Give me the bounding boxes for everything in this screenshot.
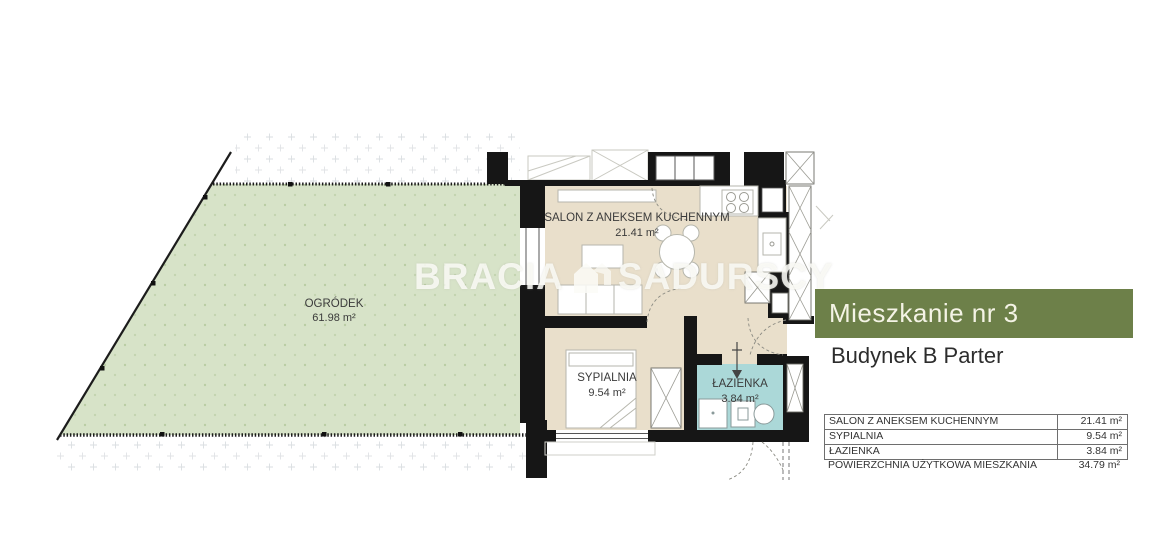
- apartment-title: Mieszkanie nr 3: [829, 298, 1019, 328]
- room-area-cell: 9.54 m²: [1057, 430, 1127, 444]
- room-name-cell: ŁAZIENKA: [825, 445, 1057, 459]
- terrace-outline: [545, 442, 655, 455]
- bathroom-area: 3.84 m²: [721, 393, 759, 405]
- sofa: [558, 285, 642, 314]
- shower-drain: [712, 412, 715, 415]
- room-area-cell: 21.41 m²: [1057, 415, 1127, 429]
- sideboard: [558, 190, 656, 202]
- total-label: POWIERZCHNIA UŻYTKOWA MIESZKANIA: [824, 459, 1058, 473]
- total-value: 34.79 m²: [1058, 459, 1128, 473]
- room-name-cell: SALON Z ANEKSEM KUCHENNYM: [825, 415, 1057, 429]
- entry-dashed-lines: [783, 442, 789, 480]
- table-row: SALON Z ANEKSEM KUCHENNYM 21.41 m²: [825, 415, 1127, 429]
- room-area-cell: 3.84 m²: [1057, 445, 1127, 459]
- toilet: [754, 404, 774, 424]
- garden-label: OGRÓDEK: [305, 297, 364, 310]
- garden-area: [57, 152, 528, 440]
- bedroom-area: 9.54 m²: [588, 387, 626, 399]
- bed-pillow: [569, 353, 633, 366]
- table-total-row: POWIERZCHNIA UŻYTKOWA MIESZKANIA 34.79 m…: [824, 459, 1128, 473]
- bathroom-label: ŁAZIENKA: [712, 378, 768, 390]
- dining-table: [660, 235, 695, 270]
- kitchen-sink: [763, 233, 781, 255]
- salon-area: 21.41 m²: [615, 227, 659, 239]
- table-row: ŁAZIENKA 3.84 m²: [825, 444, 1127, 459]
- room-area-table: SALON Z ANEKSEM KUCHENNYM 21.41 m² SYPIA…: [824, 414, 1128, 460]
- salon-label: SALON Z ANEKSEM KUCHENNYM: [544, 212, 729, 224]
- bedroom-window: [556, 430, 648, 442]
- table-row: SYPIALNIA 9.54 m²: [825, 429, 1127, 444]
- room-name-cell: SYPIALNIA: [825, 430, 1057, 444]
- apartment-title-bar: Mieszkanie nr 3: [815, 289, 1133, 338]
- coffee-table: [582, 245, 623, 268]
- garden-area: 61.98 m²: [312, 312, 356, 324]
- floor-plan-page: OGRÓDEK 61.98 m² SALON Z ANEKSEM KUCHENN…: [0, 0, 1175, 556]
- salon-top-window: [656, 156, 714, 180]
- bedroom-label: SYPIALNIA: [577, 372, 637, 384]
- washbasin-bowl: [738, 408, 748, 420]
- building-subtitle: Budynek B Parter: [831, 343, 1003, 369]
